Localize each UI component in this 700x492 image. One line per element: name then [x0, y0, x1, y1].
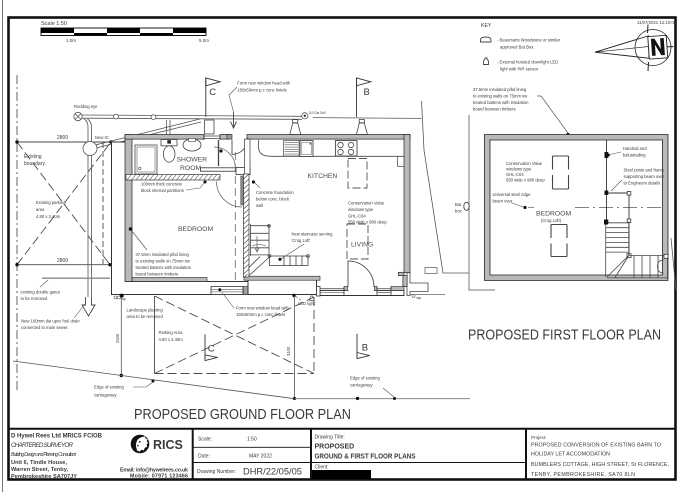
svg-text:Universal steel ridge: Universal steel ridge [493, 192, 532, 197]
svg-text:Form new window head with: Form new window head with [236, 306, 290, 311]
svg-text:block internal partitions: block internal partitions [141, 188, 184, 193]
svg-text:1.0m: 1.0m [66, 38, 76, 43]
svg-text:2400: 2400 [115, 333, 120, 343]
svg-text:New IC: New IC [95, 135, 109, 140]
svg-text:GHL-C04: GHL-C04 [348, 214, 366, 219]
svg-text:Date:: Date: [198, 454, 210, 460]
svg-text:GROUND & FIRST FLOOR PLANS: GROUND & FIRST FLOOR PLANS [315, 454, 416, 461]
svg-text:treated battens with insulatio: treated battens with insulation [136, 265, 192, 270]
svg-text:Drawing Number:: Drawing Number: [197, 469, 236, 475]
svg-text:tap: tap [417, 296, 422, 300]
svg-text:Landscape planting: Landscape planting [127, 308, 164, 313]
svg-text:balustrading: balustrading [623, 153, 646, 158]
svg-text:PROPOSED CONVERSION OF EXISTIN: PROPOSED CONVERSION OF EXISTING BARN TO [531, 443, 661, 449]
svg-text:Scale:: Scale: [198, 437, 212, 443]
svg-text:Drawing Title:: Drawing Title: [315, 435, 345, 441]
svg-text:DHR/22/05/05: DHR/22/05/05 [243, 467, 302, 477]
svg-text:board between timbers: board between timbers [136, 272, 179, 277]
svg-text:37.5mm insulated p/bd lining: 37.5mm insulated p/bd lining [136, 252, 190, 257]
svg-text:Handrail and: Handrail and [623, 146, 647, 151]
svg-text:to existing walls on 75mm sw: to existing walls on 75mm sw [136, 258, 191, 263]
svg-text:1:50: 1:50 [247, 437, 257, 443]
svg-text:carriageway: carriageway [94, 392, 117, 397]
svg-text:windows type: windows type [506, 166, 532, 171]
svg-text:SHOWER: SHOWER [177, 157, 208, 164]
svg-text:LIVING: LIVING [351, 242, 373, 249]
svg-text:- External hooded downlight LE: - External hooded downlight LED [497, 60, 558, 65]
svg-text:5.0m: 5.0m [199, 38, 209, 43]
svg-text:4.80 x 2.40m: 4.80 x 2.40m [159, 337, 184, 342]
svg-text:BUMBLERS COTTAGE, HIGH STREET,: BUMBLERS COTTAGE, HIGH STREET, St FLOREN… [531, 462, 669, 468]
svg-text:C: C [209, 87, 216, 98]
svg-text:connected to main sewer.: connected to main sewer. [21, 325, 69, 330]
svg-text:Project:: Project: [531, 435, 547, 440]
svg-text:Building Design and Planning C: Building Design and Planning Consultant [11, 452, 77, 458]
svg-text:PROPOSED GROUND FLOOR PLAN: PROPOSED GROUND FLOOR PLAN [134, 406, 351, 423]
svg-text:B: B [362, 343, 368, 354]
svg-text:550 wide x 980 deep: 550 wide x 980 deep [506, 177, 545, 182]
svg-text:3100: 3100 [286, 346, 291, 356]
svg-text:New staircase serving: New staircase serving [292, 232, 334, 237]
svg-text:2800: 2800 [57, 258, 68, 264]
svg-text:Edge of existing: Edge of existing [94, 385, 124, 390]
svg-text:150x50mm p.c conc lintels: 150x50mm p.c conc lintels [237, 87, 286, 92]
svg-text:Edge of existing: Edge of existing [350, 376, 380, 381]
svg-text:windows type: windows type [348, 207, 374, 212]
svg-text:TENBY, PEMBROKESHIRE, SA70 8LN: TENBY, PEMBROKESHIRE, SA70 8LN [531, 472, 635, 478]
svg-text:Warren Street, Tenby,: Warren Street, Tenby, [11, 467, 68, 473]
svg-text:tap: tap [121, 297, 126, 301]
svg-text:existing double gates: existing double gates [21, 290, 60, 295]
svg-text:wall: wall [256, 203, 263, 208]
svg-text:110 Dia Soil: 110 Dia Soil [309, 111, 326, 115]
svg-text:Scale 1:50: Scale 1:50 [41, 21, 67, 27]
svg-text:CHARTERED SURVEYOR: CHARTERED SURVEYOR [11, 442, 73, 449]
svg-text:Existing parking: Existing parking [36, 200, 66, 205]
svg-text:to existing walls on 75mm sw: to existing walls on 75mm sw [473, 94, 528, 99]
svg-text:Client:: Client: [315, 465, 329, 471]
svg-text:Concrete foundation: Concrete foundation [256, 190, 294, 195]
svg-text:D Hywel Rees Ltd MRICS FCIOB: D Hywel Rees Ltd MRICS FCIOB [11, 434, 103, 440]
svg-text:approved Bat Box.: approved Bat Box. [500, 45, 534, 50]
svg-text:Steel posts and frame: Steel posts and frame [624, 168, 665, 173]
svg-text:4.80 x 2.40m: 4.80 x 2.40m [36, 214, 61, 219]
svg-text:PROPOSED: PROPOSED [315, 444, 355, 451]
svg-text:(Crog Loft): (Crog Loft) [541, 218, 562, 223]
svg-text:Mobile: 07971 123466: Mobile: 07971 123466 [130, 474, 188, 480]
svg-text:KITCHEN: KITCHEN [308, 173, 338, 180]
svg-text:area: area [36, 207, 45, 212]
svg-text:100mm thick concrete: 100mm thick concrete [141, 182, 183, 187]
svg-text:Email: info@hywelrees.co.uk: Email: info@hywelrees.co.uk [120, 467, 188, 473]
svg-text:supporting beam over: supporting beam over [624, 174, 665, 179]
svg-text:carriageway: carriageway [350, 383, 373, 388]
svg-text:Bat: Bat [455, 202, 462, 207]
svg-text:to be removed: to be removed [21, 296, 48, 301]
svg-text:BEDROOM: BEDROOM [536, 211, 571, 218]
svg-text:board between timbers: board between timbers [473, 107, 516, 112]
svg-text:2800: 2800 [57, 135, 68, 141]
svg-text:- Beaumaris Woodstone or simil: - Beaumaris Woodstone or similar [497, 38, 561, 43]
svg-text:Rodding eye: Rodding eye [74, 104, 98, 109]
svg-text:BEDROOM: BEDROOM [178, 226, 213, 233]
svg-text:Parking Area: Parking Area [159, 330, 184, 335]
svg-text:KEY: KEY [481, 23, 492, 29]
svg-text:treated battens with insulatio: treated battens with insulation [473, 100, 529, 105]
svg-text:Conservation Value: Conservation Value [348, 201, 385, 206]
svg-text:MAY 2022: MAY 2022 [249, 454, 272, 460]
svg-text:beam over: beam over [493, 199, 513, 204]
svg-text:GHL-C04: GHL-C04 [506, 172, 524, 177]
svg-text:to Engineers details: to Engineers details [624, 181, 661, 186]
svg-text:Unit 6, Tindle House,: Unit 6, Tindle House, [11, 460, 67, 466]
svg-text:C: C [208, 344, 215, 355]
svg-text:box: box [455, 209, 463, 214]
svg-text:light with PIR sensor: light with PIR sensor [500, 67, 539, 72]
svg-text:New 100mm dia upvc foul drain: New 100mm dia upvc foul drain [21, 319, 80, 324]
svg-text:below conc. block: below conc. block [256, 197, 290, 202]
svg-text:37.5mm insulated p/bd lining: 37.5mm insulated p/bd lining [473, 87, 527, 92]
svg-text:ROOM: ROOM [180, 165, 201, 172]
svg-text:Pembrokeshire SA707JY: Pembrokeshire SA707JY [11, 474, 77, 480]
svg-text:'Crog Loft': 'Crog Loft' [292, 238, 311, 243]
svg-text:B: B [364, 87, 370, 98]
svg-text:Conservation Value: Conservation Value [506, 161, 543, 166]
svg-text:RICS: RICS [153, 438, 183, 452]
svg-text:area to be removed: area to be removed [127, 314, 164, 319]
svg-text:11/07/2021 12:10:00: 11/07/2021 12:10:00 [637, 20, 677, 25]
svg-text:HOLIDAY LET ACCOMODATION: HOLIDAY LET ACCOMODATION [531, 452, 610, 458]
svg-text:PROPOSED FIRST FLOOR PLAN: PROPOSED FIRST FLOOR PLAN [468, 327, 661, 344]
svg-text:Form new window head with: Form new window head with [237, 81, 291, 86]
svg-text:550 wide x 980 deep: 550 wide x 980 deep [348, 220, 387, 225]
